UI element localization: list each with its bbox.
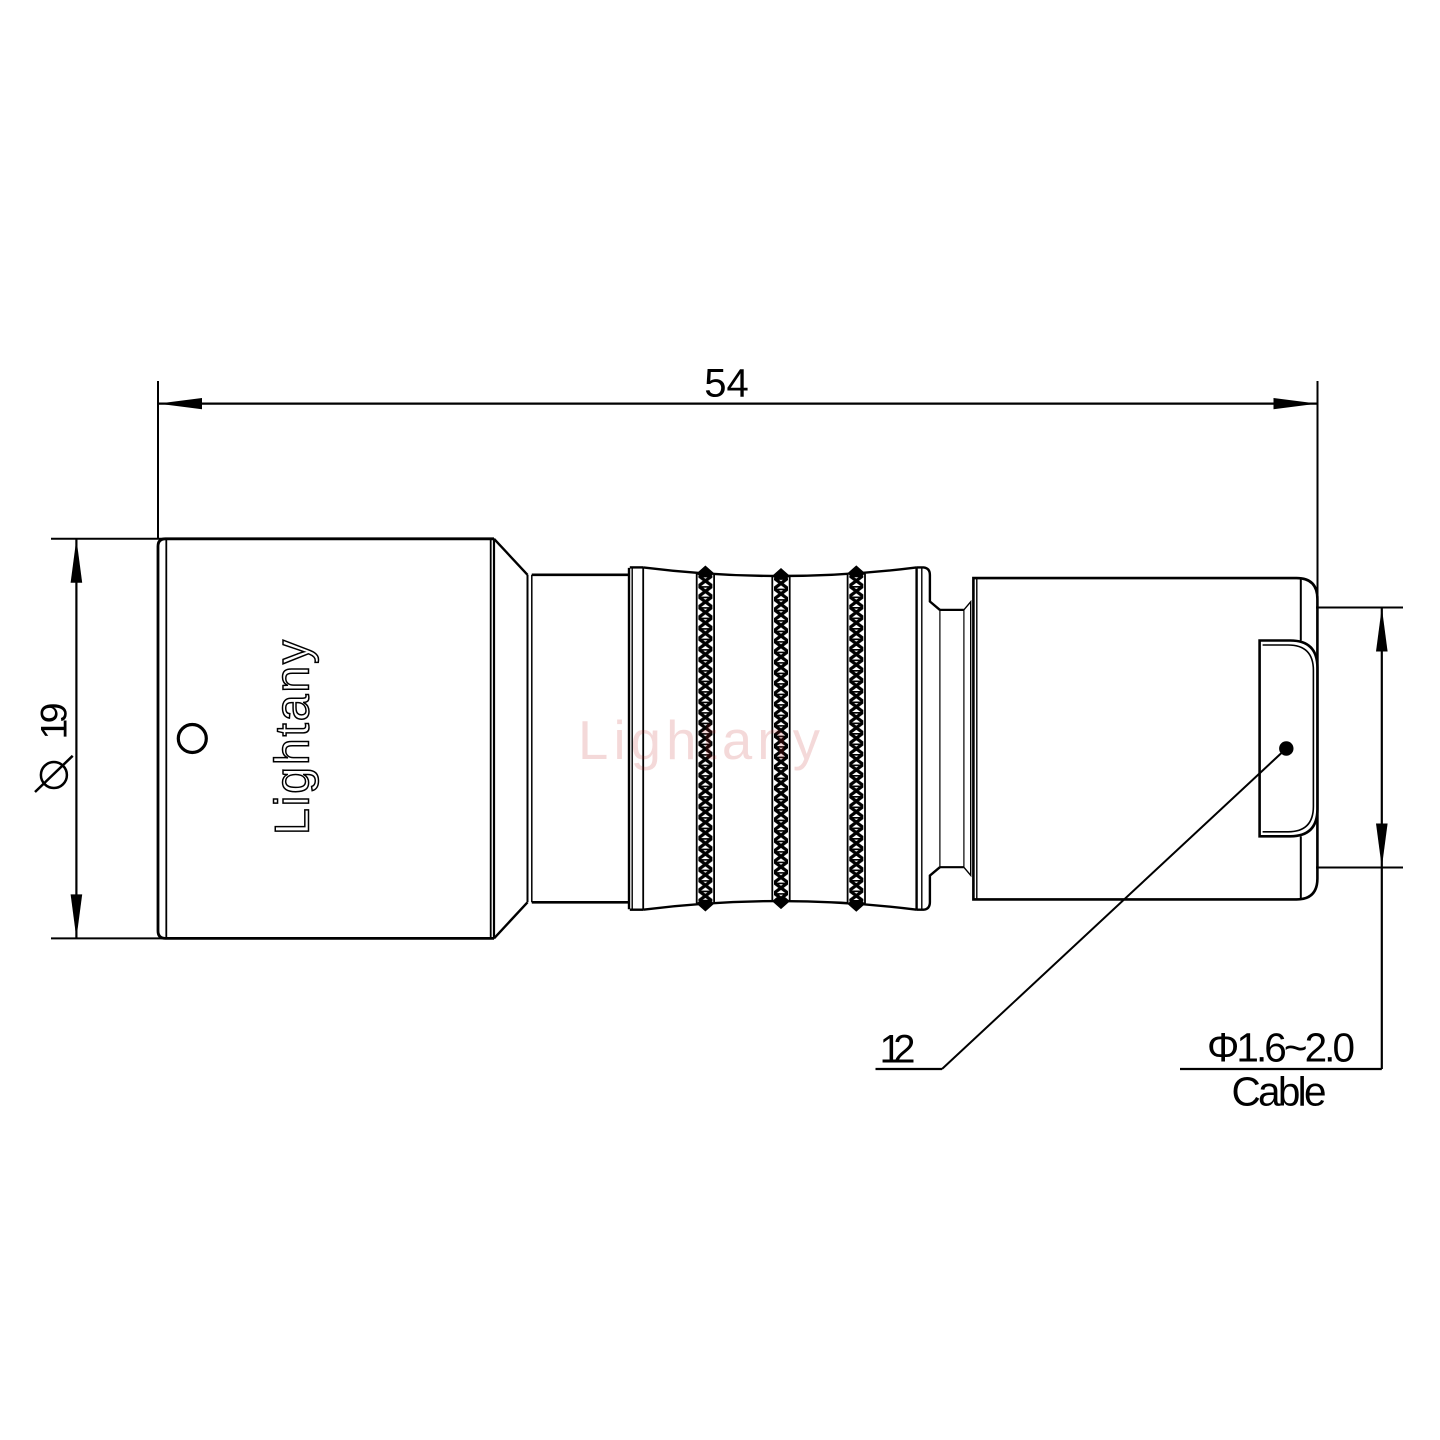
svg-text:Lightany: Lightany bbox=[267, 640, 320, 835]
svg-text:19: 19 bbox=[32, 703, 74, 740]
svg-text:Φ1.6~2.0: Φ1.6~2.0 bbox=[1207, 1025, 1355, 1071]
svg-text:54: 54 bbox=[704, 362, 749, 406]
svg-text:12: 12 bbox=[880, 1028, 916, 1072]
svg-text:Cable: Cable bbox=[1232, 1069, 1327, 1115]
